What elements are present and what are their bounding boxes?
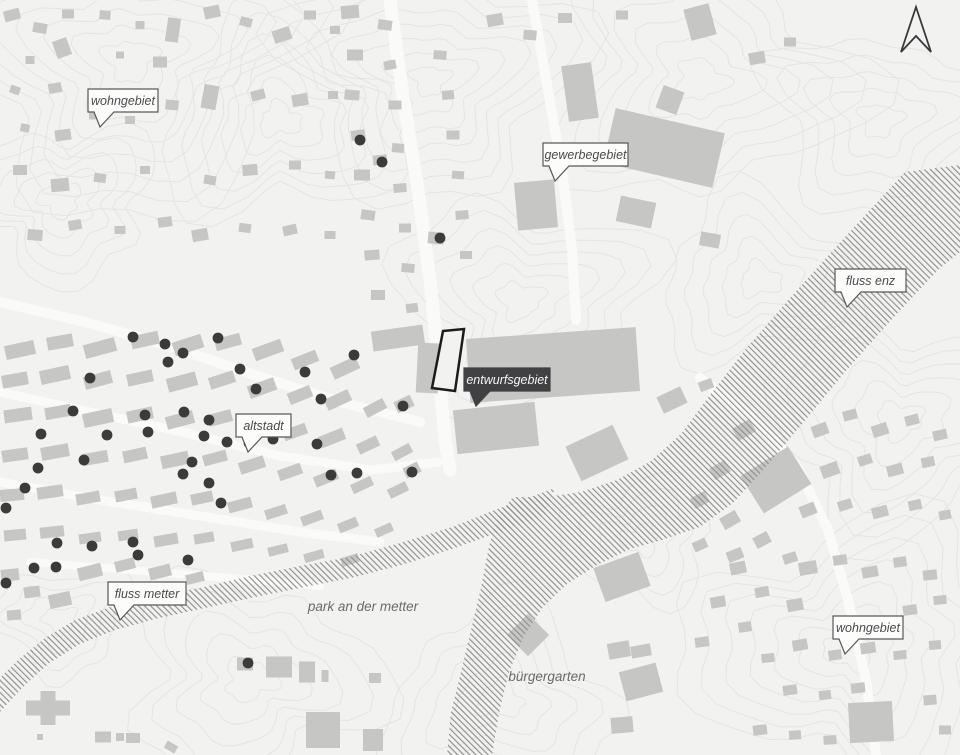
building [116, 733, 124, 741]
building [848, 701, 894, 743]
site-plan-map: wohngebietgewerbegebietfluss enzentwurfs… [0, 0, 960, 755]
poi-dot [222, 437, 233, 448]
building [157, 216, 172, 228]
building [405, 303, 418, 314]
map-canvas: wohngebietgewerbegebietfluss enzentwurfs… [0, 0, 960, 755]
poi-dot [204, 415, 215, 426]
poi-dot [140, 410, 151, 421]
building [452, 170, 465, 179]
poi-dot [133, 550, 144, 561]
building [41, 691, 56, 725]
building [610, 716, 633, 734]
building [929, 640, 942, 650]
building [360, 209, 375, 221]
poi-dot [377, 157, 388, 168]
building [616, 11, 628, 20]
building [13, 165, 27, 175]
building [860, 642, 876, 655]
building [115, 226, 126, 234]
building [330, 26, 340, 34]
building [50, 178, 69, 193]
poi-dot [187, 457, 198, 468]
building [523, 29, 537, 40]
building [401, 263, 415, 273]
building [364, 249, 380, 260]
building [165, 99, 179, 110]
building [453, 402, 539, 454]
building [95, 732, 111, 743]
building [399, 224, 411, 233]
poi-dot [435, 233, 446, 244]
poi-dot [199, 431, 210, 442]
building [789, 730, 802, 740]
building [371, 290, 385, 300]
building [363, 729, 383, 751]
building [62, 10, 74, 19]
building [322, 670, 329, 682]
building [939, 726, 951, 735]
poi-dot [352, 468, 363, 479]
building [433, 50, 447, 60]
building [738, 621, 752, 633]
building [354, 170, 370, 181]
map-label-text: wohngebiet [91, 94, 155, 108]
poi-dot [102, 430, 113, 441]
building [455, 210, 469, 220]
poi-dot [33, 463, 44, 474]
building [340, 5, 359, 20]
building [238, 223, 251, 234]
poi-dot [300, 367, 311, 378]
building [37, 734, 43, 740]
poi-dot [143, 427, 154, 438]
building [761, 653, 775, 663]
building [823, 735, 836, 745]
building [369, 673, 381, 683]
building [153, 57, 167, 68]
building [933, 595, 947, 605]
poi-dot [52, 538, 63, 549]
map-label-buergergarten: bürgergarten [508, 669, 585, 684]
building [344, 89, 360, 100]
building [377, 19, 392, 31]
poi-dot [85, 373, 96, 384]
building [514, 179, 558, 230]
poi-dot [312, 439, 323, 450]
building [389, 101, 402, 110]
building [893, 650, 907, 660]
poi-dot [51, 562, 62, 573]
building [4, 529, 27, 542]
building [347, 50, 363, 61]
building [893, 556, 907, 568]
poi-dot [178, 348, 189, 359]
building [299, 662, 315, 683]
building [923, 694, 937, 705]
poi-dot [349, 350, 360, 361]
poi-dot [36, 429, 47, 440]
building [753, 724, 768, 735]
poi-dot [235, 364, 246, 375]
poi-dot [251, 384, 262, 395]
map-label-park-an-der-metter: park an der metter [307, 599, 419, 614]
poi-dot [79, 455, 90, 466]
building [828, 649, 842, 661]
poi-dot [179, 407, 190, 418]
poi-dot [160, 339, 171, 350]
poi-dot [183, 555, 194, 566]
poi-dot [1, 503, 12, 514]
map-label-text: gewerbegebiet [544, 148, 627, 162]
building [23, 585, 40, 598]
poi-dot [87, 541, 98, 552]
building [325, 231, 336, 239]
map-label-text: altstadt [243, 419, 284, 433]
map-label-text: fluss enz [846, 274, 896, 288]
building [832, 554, 847, 566]
building [558, 13, 572, 23]
poi-dot [316, 394, 327, 405]
poi-dot [326, 470, 337, 481]
building [819, 690, 832, 700]
building [447, 131, 460, 140]
building [242, 164, 258, 176]
poi-dot [1, 578, 12, 589]
building [902, 604, 917, 616]
building [304, 11, 316, 20]
building [442, 90, 455, 100]
building [136, 21, 145, 29]
building [7, 609, 22, 620]
building [328, 91, 338, 99]
map-label-text: fluss metter [115, 587, 180, 601]
poi-dot [213, 333, 224, 344]
building [392, 143, 405, 153]
building [782, 684, 797, 696]
building [784, 38, 796, 47]
poi-dot [68, 406, 79, 417]
poi-dot [163, 357, 174, 368]
building [694, 636, 709, 648]
building [125, 116, 135, 124]
poi-dot [178, 469, 189, 480]
building [266, 657, 292, 678]
building [140, 166, 150, 174]
building [923, 569, 938, 580]
building [93, 173, 106, 184]
building [851, 682, 866, 693]
building [99, 10, 111, 20]
building [126, 733, 140, 743]
building [54, 128, 71, 141]
poi-dot [355, 135, 366, 146]
poi-dot [128, 537, 139, 548]
building [289, 161, 301, 170]
poi-dot [29, 563, 40, 574]
poi-dot [398, 401, 409, 412]
poi-dot [204, 478, 215, 489]
map-label-text: entwurfsgebiet [466, 373, 548, 387]
building [460, 251, 472, 259]
poi-dot [243, 658, 254, 669]
building [325, 171, 336, 180]
building [26, 56, 35, 64]
poi-dot [216, 498, 227, 509]
poi-dot [20, 483, 31, 494]
building [306, 712, 340, 748]
building [27, 229, 43, 241]
building [393, 183, 407, 193]
poi-dot [407, 467, 418, 478]
poi-dot [128, 332, 139, 343]
building [116, 52, 124, 59]
map-label-text: wohngebiet [836, 621, 900, 635]
